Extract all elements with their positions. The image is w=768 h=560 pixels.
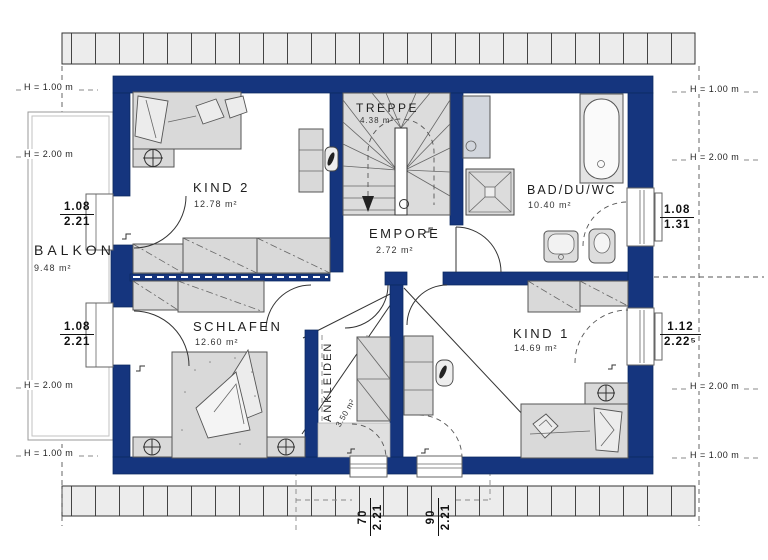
dimension-height: 2.21 — [60, 215, 94, 229]
side-table-kind2 — [133, 149, 174, 167]
nightstand-left — [133, 437, 172, 457]
dimension-height: 1.31 — [660, 218, 694, 232]
floorplan-drawing — [0, 0, 768, 560]
window-dimension-bottom-right: 90 2.21 — [424, 498, 454, 536]
height-line-left-1: H = 1.00 m — [22, 82, 75, 92]
room-label-kind1: KIND 1 — [513, 326, 570, 341]
bathtub — [580, 94, 623, 183]
floorplan-page: BALKON 9.48 m² KIND 2 12.78 m² TREPPE 4.… — [0, 0, 768, 560]
desk-kind1 — [404, 336, 453, 415]
height-line-right-3: H = 2.00 m — [688, 381, 741, 391]
room-label-kind2: KIND 2 — [193, 180, 250, 195]
bed-kind2 — [133, 92, 247, 149]
height-line-right-1: H = 1.00 m — [688, 84, 741, 94]
room-area-balkon: 9.48 m² — [34, 263, 72, 273]
room-area-empore: 2.72 m² — [376, 245, 414, 255]
height-line-left-3: H = 2.00 m — [22, 380, 75, 390]
duct-shaft — [463, 96, 490, 158]
dimension-width: 1.08 — [60, 320, 94, 335]
room-area-kind2: 12.78 m² — [194, 199, 238, 209]
bed-schlafen — [172, 350, 267, 458]
sink — [544, 231, 578, 262]
dimension-width: 90 — [424, 498, 439, 536]
door-dimension-left-top: 1.08 2.21 — [60, 200, 94, 230]
room-label-ankleiden: ANKLEIDEN — [322, 342, 334, 422]
dimension-height: 2.22⁵ — [660, 335, 701, 349]
window-dimension-bottom-left: 70 2.21 — [356, 498, 386, 536]
bed-kind1 — [521, 404, 628, 458]
dimension-width: 1.08 — [60, 200, 94, 215]
toilet — [589, 229, 615, 263]
door-dimension-left-bottom: 1.08 2.21 — [60, 320, 94, 350]
height-line-right-2: H = 2.00 m — [688, 152, 741, 162]
height-line-right-4: H = 1.00 m — [688, 450, 741, 460]
wardrobe-kind1 — [528, 281, 628, 312]
room-label-bad: BAD/DU/WC — [527, 183, 617, 197]
nightstand-right — [267, 437, 305, 457]
height-line-left-4: H = 1.00 m — [22, 448, 75, 458]
window-bottom-kind1 — [417, 415, 462, 477]
room-area-schlafen: 12.60 m² — [195, 337, 239, 347]
height-line-left-2: H = 2.00 m — [22, 149, 75, 159]
shower — [466, 169, 514, 215]
room-area-treppe: 4.38 m² — [360, 116, 394, 125]
roof-strip-top — [62, 33, 695, 64]
room-label-empore: EMPORE — [369, 226, 440, 241]
dimension-height: 2.21 — [439, 498, 453, 536]
dimension-width: 1.12 — [660, 320, 701, 335]
dimension-width: 70 — [356, 498, 371, 536]
dimension-height: 2.21 — [371, 498, 385, 536]
dimension-width: 1.08 — [660, 203, 694, 218]
room-area-bad: 10.40 m² — [528, 200, 572, 210]
balcony-outline — [28, 112, 113, 440]
dimension-height: 2.21 — [60, 335, 94, 349]
window-dimension-right-top: 1.08 1.31 — [660, 203, 694, 233]
ankleiden-floor-recess — [318, 423, 390, 457]
door-bad — [456, 227, 501, 272]
room-label-balkon: BALKON — [34, 242, 115, 258]
room-area-kind1: 14.69 m² — [514, 343, 558, 353]
room-label-schlafen: SCHLAFEN — [193, 319, 282, 334]
room-label-treppe: TREPPE — [356, 101, 419, 115]
window-dimension-right-bottom: 1.12 2.22⁵ — [660, 320, 701, 350]
window-kind1-right — [575, 308, 662, 365]
nightstand-kind1 — [585, 383, 628, 404]
